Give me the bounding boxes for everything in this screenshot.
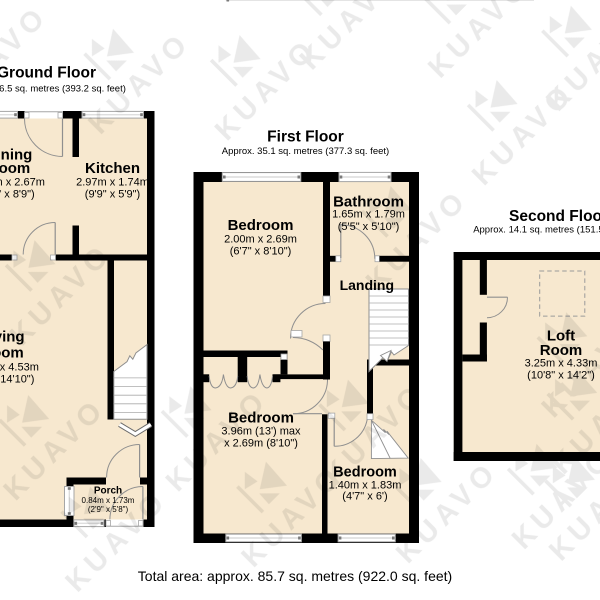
svg-text:(9'9" x 5'9"): (9'9" x 5'9") <box>85 189 140 201</box>
svg-text:2.44m x 2.67m: 2.44m x 2.67m <box>0 177 45 189</box>
svg-text:(6'7" x 8'10"): (6'7" x 8'10") <box>230 246 292 258</box>
svg-text:Approx. 14.1 sq. metres (151.5: Approx. 14.1 sq. metres (151.5 sq. feet) <box>473 225 600 236</box>
svg-text:First Floor: First Floor <box>267 129 344 146</box>
svg-text:2.00m x 2.69m: 2.00m x 2.69m <box>224 234 297 246</box>
svg-text:(8'0" x 8'9"): (8'0" x 8'9") <box>0 189 35 201</box>
svg-text:3.96m x 4.53m: 3.96m x 4.53m <box>0 362 39 374</box>
svg-text:2.97m x 1.74m: 2.97m x 1.74m <box>76 177 149 189</box>
svg-text:Approx. 35.1 sq. metres (377.3: Approx. 35.1 sq. metres (377.3 sq. feet) <box>222 146 389 157</box>
svg-text:Room: Room <box>0 345 24 362</box>
svg-text:Second Floor: Second Floor <box>509 208 600 225</box>
svg-text:Porch: Porch <box>94 486 122 497</box>
svg-text:(4'7" x 6'): (4'7" x 6') <box>342 491 387 503</box>
svg-text:Ground Floor: Ground Floor <box>0 65 96 82</box>
svg-text:Room: Room <box>0 160 30 177</box>
svg-text:Total area: approx. 85.7 sq. m: Total area: approx. 85.7 sq. metres (922… <box>138 568 452 584</box>
svg-text:(13' x 14'10"): (13' x 14'10") <box>0 374 34 386</box>
svg-text:Kitchen: Kitchen <box>85 160 140 177</box>
svg-text:Bedroom: Bedroom <box>228 217 294 234</box>
